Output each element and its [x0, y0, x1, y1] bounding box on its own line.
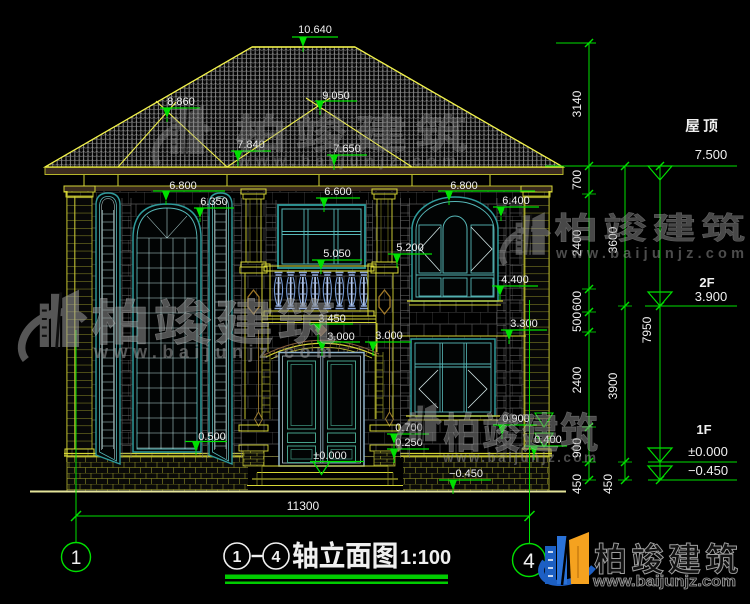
svg-text:4: 4 [523, 550, 535, 573]
svg-text:7.500: 7.500 [695, 147, 728, 162]
svg-text:−0.450: −0.450 [449, 468, 483, 480]
svg-text:1F: 1F [696, 422, 711, 437]
svg-text:7950: 7950 [640, 316, 654, 343]
svg-text:5.050: 5.050 [323, 248, 351, 260]
svg-text:2F: 2F [699, 275, 714, 290]
svg-text:4: 4 [272, 549, 281, 566]
svg-text:±0.000: ±0.000 [313, 450, 347, 462]
svg-text:6.800: 6.800 [169, 180, 197, 192]
svg-text:5.200: 5.200 [396, 242, 424, 254]
svg-text:8.860: 8.860 [167, 96, 195, 108]
svg-text:9.050: 9.050 [322, 90, 350, 102]
svg-text:1:100: 1:100 [400, 547, 451, 569]
svg-text:−0.450: −0.450 [688, 463, 728, 478]
svg-text:6.350: 6.350 [200, 196, 228, 208]
svg-text:6.800: 6.800 [450, 180, 478, 192]
svg-text:700: 700 [570, 170, 584, 190]
svg-text:3.900: 3.900 [695, 289, 728, 304]
svg-text:450: 450 [570, 474, 584, 494]
svg-text:6.600: 6.600 [324, 186, 352, 198]
svg-text:3900: 3900 [606, 372, 620, 399]
svg-text:10.640: 10.640 [298, 24, 332, 36]
svg-text:3140: 3140 [570, 90, 584, 117]
svg-text:2400: 2400 [570, 366, 584, 393]
svg-text:500: 500 [570, 312, 584, 332]
svg-text:11300: 11300 [287, 499, 320, 513]
svg-text:600: 600 [570, 291, 584, 311]
svg-text:6.400: 6.400 [502, 195, 530, 207]
svg-text:1: 1 [71, 548, 82, 569]
svg-text:www.baijunjz.com: www.baijunjz.com [592, 573, 736, 590]
svg-text:1: 1 [233, 549, 242, 566]
svg-text:450: 450 [601, 474, 615, 494]
svg-text:±0.000: ±0.000 [688, 444, 728, 459]
svg-text:4.400: 4.400 [501, 274, 529, 286]
svg-text:3.300: 3.300 [510, 318, 538, 330]
svg-text:3.000: 3.000 [375, 330, 403, 342]
